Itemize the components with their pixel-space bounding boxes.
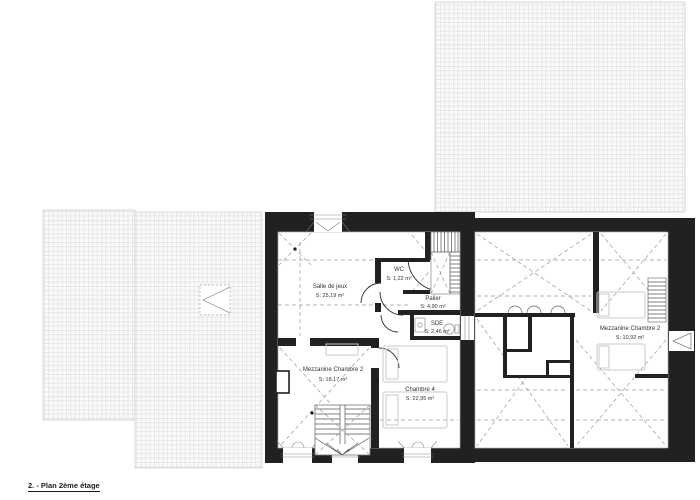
bed-mezz-right-2 [597, 344, 645, 370]
label-palier: Palier [425, 296, 440, 302]
area-salle-de-jeux: S: 25,19 m² [316, 293, 345, 299]
window-east [669, 331, 694, 351]
door-salle-hall [361, 283, 381, 303]
wc-north-wall [375, 258, 430, 262]
door-chambre4 [379, 348, 399, 368]
stair-west-wall [425, 232, 431, 260]
hall-west-wall [375, 303, 381, 312]
rooms-divider-wall [593, 232, 599, 313]
mezz-north-wall-b [310, 338, 375, 346]
hall-south-wall [398, 310, 460, 315]
window-sde-east [461, 316, 474, 340]
roof-window-icon [200, 285, 230, 315]
label-mezzanine-chambre2: Mezzanine Chambre 2 [303, 367, 364, 373]
door-hall-chambre4 [381, 315, 398, 332]
wc-south-wall [403, 290, 430, 294]
area-chambre4: S: 22,95 m² [406, 396, 435, 402]
roof-top-right [435, 2, 685, 212]
sde-south-wall [410, 336, 460, 340]
roof-left-lower [135, 212, 262, 468]
floorplan-drawing: Salle de jeux S: 25,19 m² WC S: 1,22 m² … [0, 0, 700, 500]
mezz-north-wall-a [278, 338, 296, 346]
closet-block [503, 317, 573, 378]
window-south-1 [277, 441, 318, 463]
room-labels: Salle de jeux S: 25,19 m² WC S: 1,22 m² … [303, 267, 661, 402]
area-wc: S: 1,22 m² [386, 276, 412, 282]
right-section-walls [460, 218, 695, 462]
sde-west-wall [410, 315, 414, 338]
roof-areas [43, 2, 685, 468]
roof-left-upper [43, 210, 135, 420]
stair-top [431, 232, 460, 294]
area-mezzanine-chambre2-b: S: 10,92 m² [616, 335, 645, 341]
label-salle-de-jeux: Salle de jeux [313, 284, 347, 290]
stair-right [648, 278, 666, 322]
label-mezzanine-chambre2-b: Mezzanine Chambre 2 [600, 326, 661, 332]
label-wc: WC [394, 267, 405, 273]
stair-winder [315, 405, 370, 455]
label-chambre4: Chambre 4 [405, 387, 435, 393]
area-sde: S: 2,46 m² [424, 329, 450, 335]
plan-title: 2. - Plan 2ème étage [28, 481, 100, 492]
mezz-east-wall-b [371, 368, 379, 448]
bed-chambre4-1 [383, 346, 447, 382]
mezz-east-wall-a [371, 338, 379, 348]
label-sde: SDE [431, 321, 443, 327]
lower-divider-wall [570, 317, 574, 448]
ceiling-point-markers [293, 247, 313, 414]
wall-niche [276, 371, 289, 393]
area-mezzanine-chambre2: S: 18,17 m² [319, 377, 348, 383]
wc-west-wall [375, 262, 381, 283]
area-palier: S: 4,90 m² [420, 304, 446, 310]
floorplan-canvas: Salle de jeux S: 25,19 m² WC S: 1,22 m² … [0, 0, 700, 500]
bed-mezz-right-1 [597, 292, 645, 318]
vent-arcs [508, 306, 565, 313]
